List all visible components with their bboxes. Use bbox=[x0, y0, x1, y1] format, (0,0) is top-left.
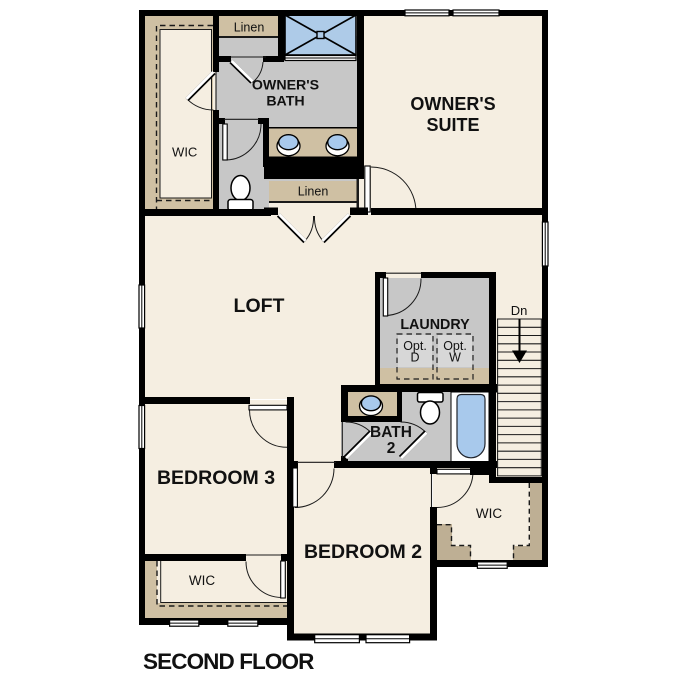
svg-text:D: D bbox=[410, 351, 419, 365]
svg-text:OWNER'S: OWNER'S bbox=[252, 78, 319, 94]
svg-text:WIC: WIC bbox=[189, 573, 215, 588]
svg-text:2: 2 bbox=[387, 440, 396, 457]
svg-text:WIC: WIC bbox=[476, 506, 502, 521]
svg-text:W: W bbox=[449, 351, 461, 365]
svg-text:WIC: WIC bbox=[172, 145, 197, 160]
svg-text:Dn: Dn bbox=[511, 303, 528, 318]
svg-text:SUITE: SUITE bbox=[426, 115, 479, 135]
svg-text:BEDROOM 2: BEDROOM 2 bbox=[304, 541, 422, 563]
svg-text:BATH: BATH bbox=[370, 424, 412, 441]
svg-text:BEDROOM 3: BEDROOM 3 bbox=[157, 467, 275, 489]
svg-text:LAUNDRY: LAUNDRY bbox=[400, 317, 470, 333]
svg-text:SECOND FLOOR: SECOND FLOOR bbox=[143, 649, 314, 674]
svg-text:Linen: Linen bbox=[298, 185, 329, 199]
svg-text:OWNER'S: OWNER'S bbox=[410, 94, 495, 114]
svg-text:LOFT: LOFT bbox=[234, 295, 285, 317]
svg-text:BATH: BATH bbox=[266, 94, 304, 110]
svg-text:Linen: Linen bbox=[234, 21, 265, 35]
